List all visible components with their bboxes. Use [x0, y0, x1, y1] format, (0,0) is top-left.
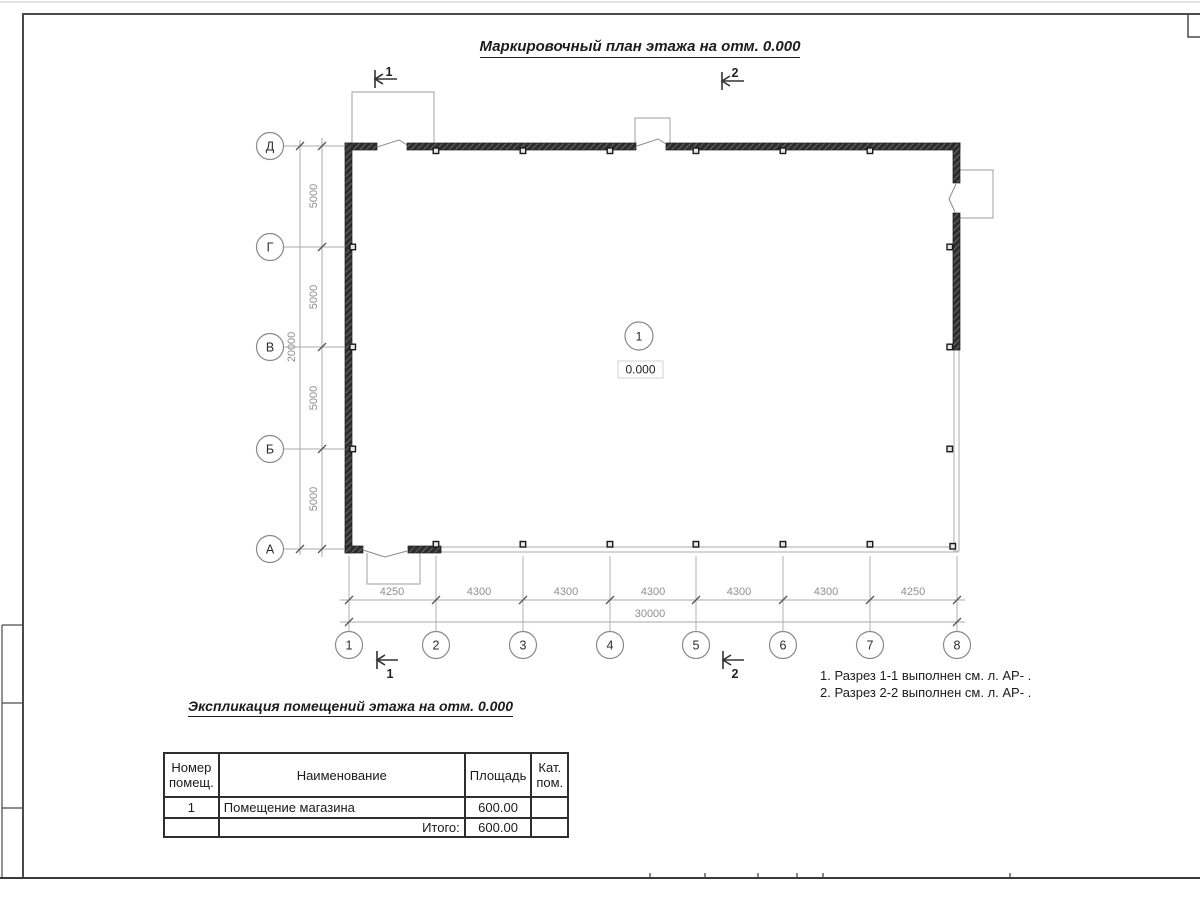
grid-axis-label: В — [266, 341, 274, 355]
dim-label: 4300 — [727, 586, 751, 598]
wall-top-seg3 — [666, 143, 960, 150]
grid-bubbles-columns: 1 2 3 4 5 6 7 8 — [336, 632, 971, 659]
cell-total-label: Итого: — [219, 818, 465, 837]
drawing-sheet: 4250 4300 4300 4300 4300 4300 4250 30000… — [0, 0, 1200, 900]
dim-label: 4300 — [814, 586, 838, 598]
grid-axis-label: А — [266, 543, 275, 557]
cell-empty — [531, 818, 568, 837]
room-number: 1 — [636, 330, 643, 344]
header-category: Кат. пом. — [531, 753, 568, 797]
wall-bottom-light — [441, 547, 958, 552]
header-area: Площадь — [465, 753, 532, 797]
table-row: 1 Помещение магазина 600.00 — [164, 797, 568, 818]
door-top-middle — [637, 139, 666, 146]
porch-top-left — [352, 92, 434, 143]
wall-right-seg1 — [953, 143, 960, 183]
drawing-title: Маркировочный план этажа на отм. 0.000 — [430, 38, 850, 55]
door-top-left — [377, 140, 407, 147]
porch-outlines — [352, 92, 993, 584]
dim-total-label: 30000 — [635, 608, 666, 620]
grid-axis-label: Д — [266, 140, 275, 154]
cell-room-category — [531, 797, 568, 818]
grid-axis-label: 6 — [780, 639, 787, 653]
cell-room-name: Помещение магазина — [219, 797, 465, 818]
grid-axis-label: 1 — [346, 639, 353, 653]
dimension-ticks — [296, 142, 961, 626]
table-header-row: Номер помещ. Наименование Площадь Кат. п… — [164, 753, 568, 797]
section-label: 2 — [732, 667, 739, 681]
grid-bubbles-rows: Д Г В Б А — [257, 133, 284, 563]
explication-title: Экспликация помещений этажа на отм. 0.00… — [188, 698, 513, 714]
light-walls — [441, 350, 959, 552]
dim-label: 4300 — [467, 586, 491, 598]
grid-axis-label: 2 — [433, 639, 440, 653]
dim-label: 5000 — [308, 184, 320, 208]
grid-axis-label: 8 — [954, 639, 961, 653]
bottom-dimension-labels: 4250 4300 4300 4300 4300 4300 4250 30000 — [380, 586, 925, 620]
room-marker: 1 0.000 — [618, 322, 663, 378]
cell-empty — [164, 818, 219, 837]
elevation-value: 0.000 — [625, 363, 655, 377]
section-label: 2 — [732, 66, 739, 80]
grid-axis-label: 3 — [520, 639, 527, 653]
dim-label: 5000 — [308, 285, 320, 309]
header-room-number: Номер помещ. — [164, 753, 219, 797]
section-marks — [375, 70, 744, 669]
dim-label: 5000 — [308, 386, 320, 410]
cell-room-number: 1 — [164, 797, 219, 818]
sheet-frame — [0, 2, 1200, 878]
column-markers — [350, 148, 956, 549]
header-name: Наименование — [219, 753, 465, 797]
dim-label: 4250 — [380, 586, 404, 598]
grid-axis-label: 7 — [867, 639, 874, 653]
grid-axis-label: Б — [266, 443, 274, 457]
door-bottom-left — [363, 550, 407, 557]
section-notes: 1. Разрез 1-1 выполнен см. л. АР- . 2. Р… — [820, 668, 1031, 701]
dim-label: 4300 — [554, 586, 578, 598]
cell-total-value: 600.00 — [465, 818, 532, 837]
dim-label: 4300 — [641, 586, 665, 598]
wall-bottom-seg1 — [345, 546, 363, 553]
left-dimension-labels: 5000 5000 5000 5000 20000 — [286, 184, 320, 511]
dim-total-label: 20000 — [286, 332, 298, 363]
grid-axis-label: 4 — [607, 639, 614, 653]
grid-axis-label: Г — [267, 241, 274, 255]
grid-axis-label: 5 — [693, 639, 700, 653]
porch-bottom-left — [367, 553, 420, 584]
section-label: 1 — [386, 65, 393, 79]
door-swings — [363, 139, 956, 557]
porch-top-middle — [635, 118, 670, 143]
door-right — [949, 184, 956, 212]
left-margin-boxes — [2, 625, 23, 877]
dark-walls — [345, 143, 960, 553]
table-total-row: Итого: 600.00 — [164, 818, 568, 837]
dim-label: 4250 — [901, 586, 925, 598]
explication-table: Номер помещ. Наименование Площадь Кат. п… — [163, 752, 569, 838]
cell-room-area: 600.00 — [465, 797, 532, 818]
wall-right-seg2 — [953, 213, 960, 350]
wall-right-light — [954, 350, 959, 551]
porch-right — [958, 170, 993, 218]
section-label: 1 — [387, 667, 394, 681]
grid-extension-lines — [283, 146, 957, 632]
corner-tab — [1188, 14, 1200, 37]
dim-label: 5000 — [308, 487, 320, 511]
